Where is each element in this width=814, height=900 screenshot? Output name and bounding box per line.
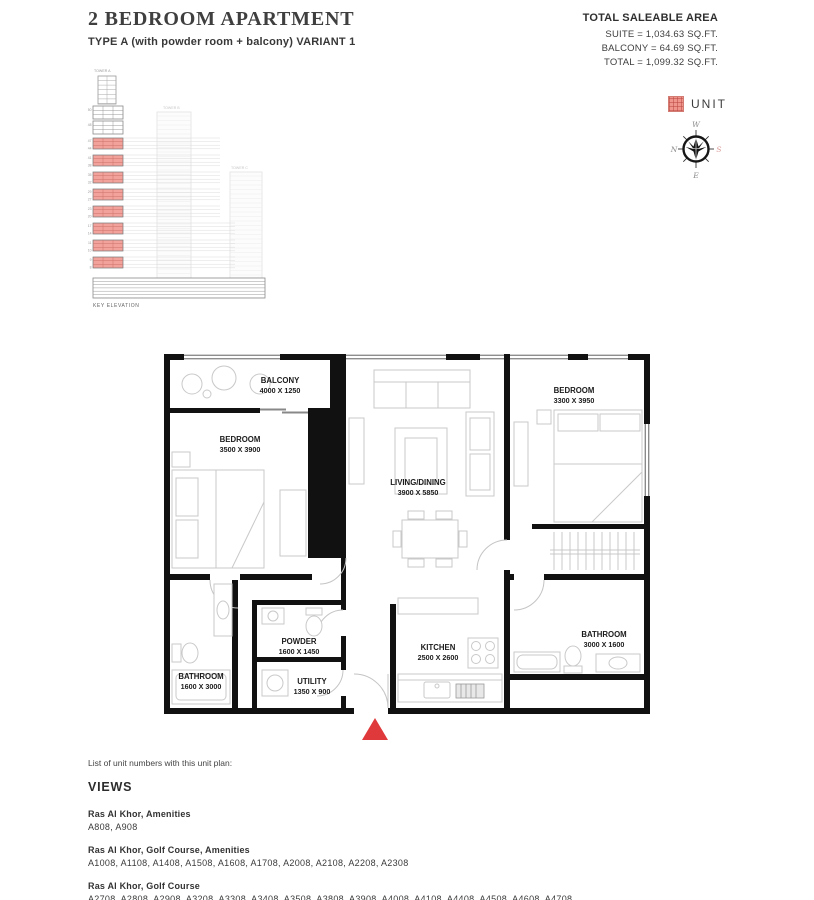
svg-text:41: 41 <box>88 156 92 160</box>
room-dims-powder: 1600 X 1450 <box>279 647 320 656</box>
svg-text:8: 8 <box>90 266 92 270</box>
svg-text:9: 9 <box>90 258 92 262</box>
area-balcony: BALCONY = 64.69 SQ.FT. <box>583 42 718 56</box>
room-dims-bathroom-1: 1600 X 3000 <box>181 682 222 691</box>
room-label-bathroom-2: BATHROOM <box>581 630 626 639</box>
svg-text:23: 23 <box>88 207 92 211</box>
svg-text:29: 29 <box>88 190 92 194</box>
svg-text:35: 35 <box>88 173 92 177</box>
unit-list-section: List of unit numbers with this unit plan… <box>88 758 748 900</box>
svg-text:47: 47 <box>88 139 92 143</box>
room-dims-bedroom-2: 3300 X 3950 <box>554 396 595 405</box>
unit-swatch-icon <box>668 96 684 112</box>
svg-text:48: 48 <box>88 123 92 127</box>
svg-text:38: 38 <box>88 164 92 168</box>
svg-text:11: 11 <box>88 241 92 245</box>
compass-w: W <box>692 120 701 129</box>
area-total: TOTAL = 1,099.32 SQ.FT. <box>583 56 718 70</box>
compass-s: S <box>716 145 721 154</box>
svg-text:20: 20 <box>88 215 92 219</box>
view-group-units: A1008, A1108, A1408, A1508, A1608, A1708… <box>88 858 748 868</box>
view-group-units: A808, A908 <box>88 822 748 832</box>
key-elevation-diagram: TOWER A TOWER B TOWER C 5048474441383532… <box>85 62 280 312</box>
entry-arrow-icon <box>362 718 388 740</box>
room-label-bedroom-2: BEDROOM <box>554 386 595 395</box>
svg-text:10: 10 <box>88 249 92 253</box>
room-dims-kitchen: 2500 X 2600 <box>418 653 459 662</box>
room-dims-living-dining: 3900 X 5850 <box>398 488 439 497</box>
room-label-utility: UTILITY <box>297 677 327 686</box>
svg-text:44: 44 <box>88 147 92 151</box>
page-title: 2 BEDROOM APARTMENT <box>88 8 355 31</box>
compass-n: N <box>670 145 678 154</box>
room-label-kitchen: KITCHEN <box>421 643 456 652</box>
view-group: Ras Al Khor, Amenities A808, A908 <box>88 809 748 832</box>
tower-b-label: TOWER B <box>163 106 180 110</box>
area-suite: SUITE = 1,034.63 SQ.FT. <box>583 28 718 42</box>
room-dims-balcony: 4000 X 1250 <box>260 386 301 395</box>
view-group-name: Ras Al Khor, Amenities <box>88 809 748 819</box>
unit-legend: UNIT <box>668 96 727 112</box>
room-dims-bedroom-1: 3500 X 3900 <box>220 445 261 454</box>
views-heading: VIEWS <box>88 780 748 794</box>
view-group: Ras Al Khor, Golf Course A2708, A2808, A… <box>88 881 748 900</box>
unit-legend-label: UNIT <box>691 97 727 111</box>
unit-list-intro: List of unit numbers with this unit plan… <box>88 758 748 768</box>
room-dims-utility: 1350 X 900 <box>294 687 331 696</box>
compass-e: E <box>692 171 699 180</box>
svg-text:27: 27 <box>88 198 92 202</box>
view-group-name: Ras Al Khor, Golf Course, Amenities <box>88 845 748 855</box>
room-label-bathroom-1: BATHROOM <box>178 672 223 681</box>
view-group-name: Ras Al Khor, Golf Course <box>88 881 748 891</box>
room-label-bedroom-1: BEDROOM <box>220 435 261 444</box>
view-group-units: A2708, A2808, A2908, A3208, A3308, A3408… <box>88 894 748 900</box>
svg-text:50: 50 <box>88 108 92 112</box>
tower-a-label: TOWER A <box>94 69 111 73</box>
area-summary-heading: TOTAL SALEABLE AREA <box>583 12 718 24</box>
room-label-balcony: BALCONY <box>261 376 300 385</box>
floor-plan-page: 2 BEDROOM APARTMENT TYPE A (with powder … <box>0 0 814 900</box>
area-summary: TOTAL SALEABLE AREA SUITE = 1,034.63 SQ.… <box>583 12 718 70</box>
view-group: Ras Al Khor, Golf Course, Amenities A100… <box>88 845 748 868</box>
compass-icon: W N E S <box>662 112 732 182</box>
svg-text:17: 17 <box>88 224 92 228</box>
title-block: 2 BEDROOM APARTMENT TYPE A (with powder … <box>88 8 355 48</box>
room-label-powder: POWDER <box>281 637 316 646</box>
svg-text:32: 32 <box>88 181 92 185</box>
svg-text:14: 14 <box>88 232 92 236</box>
room-dims-bathroom-2: 3000 X 1600 <box>584 640 625 649</box>
floor-plan: BALCONY 4000 X 1250 BEDROOM 3500 X 3900 … <box>162 352 654 744</box>
page-subtitle: TYPE A (with powder room + balcony) VARI… <box>88 36 355 48</box>
room-label-living-dining: LIVING/DINING <box>390 478 445 487</box>
tower-c-label: TOWER C <box>231 166 248 170</box>
furniture <box>172 366 642 704</box>
key-elevation-caption: KEY ELEVATION <box>93 303 139 309</box>
